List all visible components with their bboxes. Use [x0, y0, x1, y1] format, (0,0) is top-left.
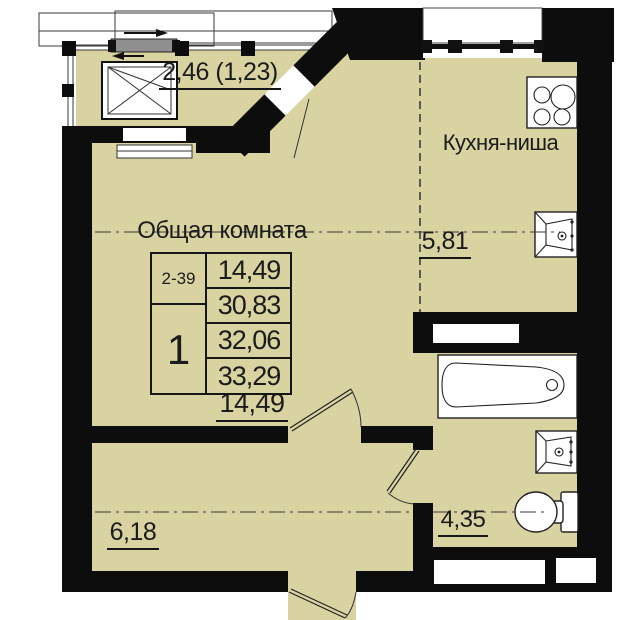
bathtub-icon	[438, 355, 577, 418]
apartment-range-cell: 2-39	[152, 254, 205, 305]
wash-sink-icon	[536, 431, 577, 473]
area-row: 14,49	[207, 254, 291, 289]
floor-plan: 2,46 (1,23) Кухня-ниша Общая комната 5,8…	[0, 0, 640, 620]
balcony-area-value: 2,46 (1,23)	[159, 58, 280, 90]
kitchen-area-value: 5,81	[419, 227, 472, 259]
bath-area-value: 4,35	[438, 506, 489, 537]
floor-plan-drawing	[0, 0, 640, 620]
balcony-area-label: 2,46 (1,23)	[150, 58, 290, 90]
kitchen-sink-icon	[535, 212, 577, 257]
kitchen-area-label: 5,81	[415, 227, 475, 259]
rooms-count-cell: 1	[152, 307, 205, 393]
area-row: 33,29	[207, 359, 291, 394]
hall-area-label: 6,18	[102, 518, 164, 550]
area-row: 32,06	[207, 324, 291, 359]
bath-area-label: 4,35	[432, 506, 494, 537]
stove-icon	[527, 77, 577, 128]
loggia-outline	[39, 11, 332, 46]
hall-area-value: 6,18	[107, 518, 160, 550]
area-row: 30,83	[207, 289, 291, 324]
room-label: Общая комната	[123, 217, 321, 245]
kitchen-label: Кухня-ниша	[423, 130, 578, 156]
apartment-info-table: 2-39 1 14,49 30,83 32,06 33,29	[150, 252, 292, 395]
